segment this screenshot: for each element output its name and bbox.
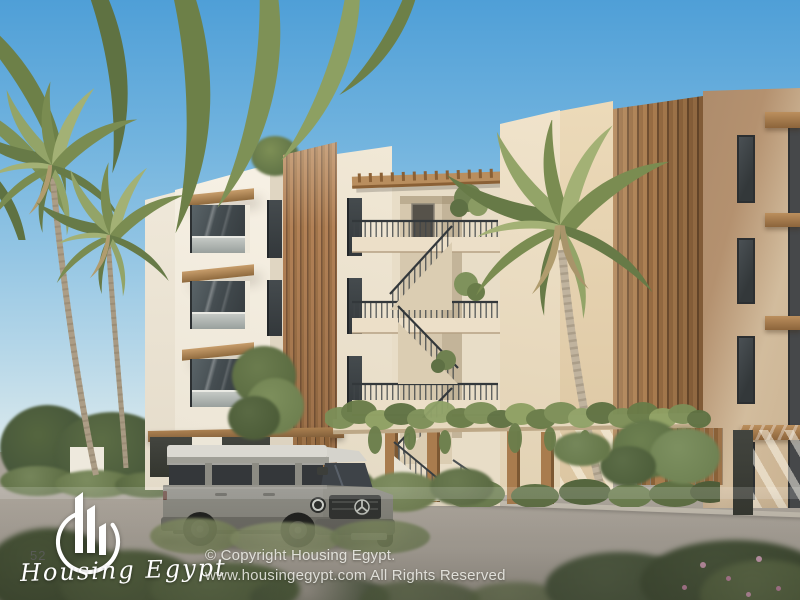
car-roof — [167, 445, 327, 459]
palm-crown — [443, 120, 680, 319]
balcony-slab — [765, 213, 800, 227]
copyright-line-2: www.housingegypt.com All Rights Reserved — [205, 566, 506, 586]
right-shrub — [553, 432, 611, 466]
facade-window — [737, 336, 755, 404]
architectural-render-scene: 52 Housing Egypt © Copyright Housing Egy… — [0, 0, 800, 600]
balcony-door — [788, 126, 800, 213]
balcony-slab — [765, 112, 800, 128]
car-windshield — [321, 463, 373, 489]
courtyard-tree — [228, 396, 280, 440]
side-mirror — [317, 467, 328, 475]
balcony-slab — [765, 316, 800, 330]
right-tree — [650, 428, 720, 484]
facade-window — [737, 238, 755, 304]
palm-trees-left — [0, 70, 260, 490]
balcony-door — [788, 330, 800, 425]
narrow-window — [267, 280, 282, 336]
facade-window — [737, 135, 755, 203]
copyright-block: © Copyright Housing Egypt. www.housingeg… — [205, 546, 506, 586]
balcony-door — [788, 227, 800, 316]
logo-building-bars — [75, 492, 106, 555]
copyright-line-1: © Copyright Housing Egypt. — [205, 546, 506, 566]
